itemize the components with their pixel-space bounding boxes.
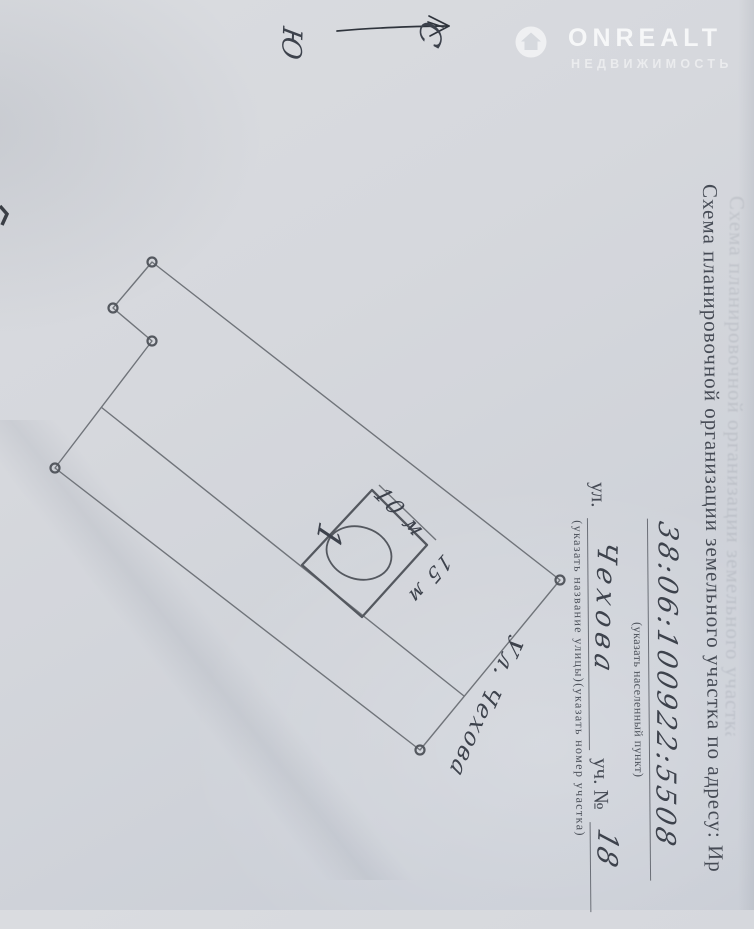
watermark-logo-icon: [512, 23, 550, 61]
cadastral-number-handwritten: 38:06:100922:5508: [649, 518, 683, 852]
photographed-site-plan-document: { "watermark": { "brand": "ONREALT", "su…: [0, 0, 754, 910]
plot-number-label: уч. №: [588, 758, 613, 810]
edge-mark: [0, 206, 7, 225]
plot-number-handwritten: 18: [590, 825, 625, 871]
title-bleed-through: Схема планировочной организации земельно…: [719, 196, 749, 736]
street-label: ул.: [586, 482, 611, 508]
street-plot-caption: (указать название улицы)(указать номер у…: [570, 520, 588, 837]
street-value-handwritten: Чехова: [588, 537, 623, 680]
street-plot-row: ул. Чехова уч. № 18 (указать название ул…: [553, 482, 617, 923]
watermark-brand: ONREALT: [568, 24, 722, 53]
form-block: Схема планировочной организации земельно…: [547, 182, 728, 928]
interior-line: [101, 407, 464, 696]
watermark-subtitle: НЕДВИЖИМОСТЬ: [571, 57, 733, 71]
compass-south-label: Ю: [275, 25, 307, 63]
settlement-caption: (указать населенный пункт): [629, 519, 647, 881]
settlement-field: 38:06:100922:5508 (указать населенный пу…: [629, 518, 688, 880]
